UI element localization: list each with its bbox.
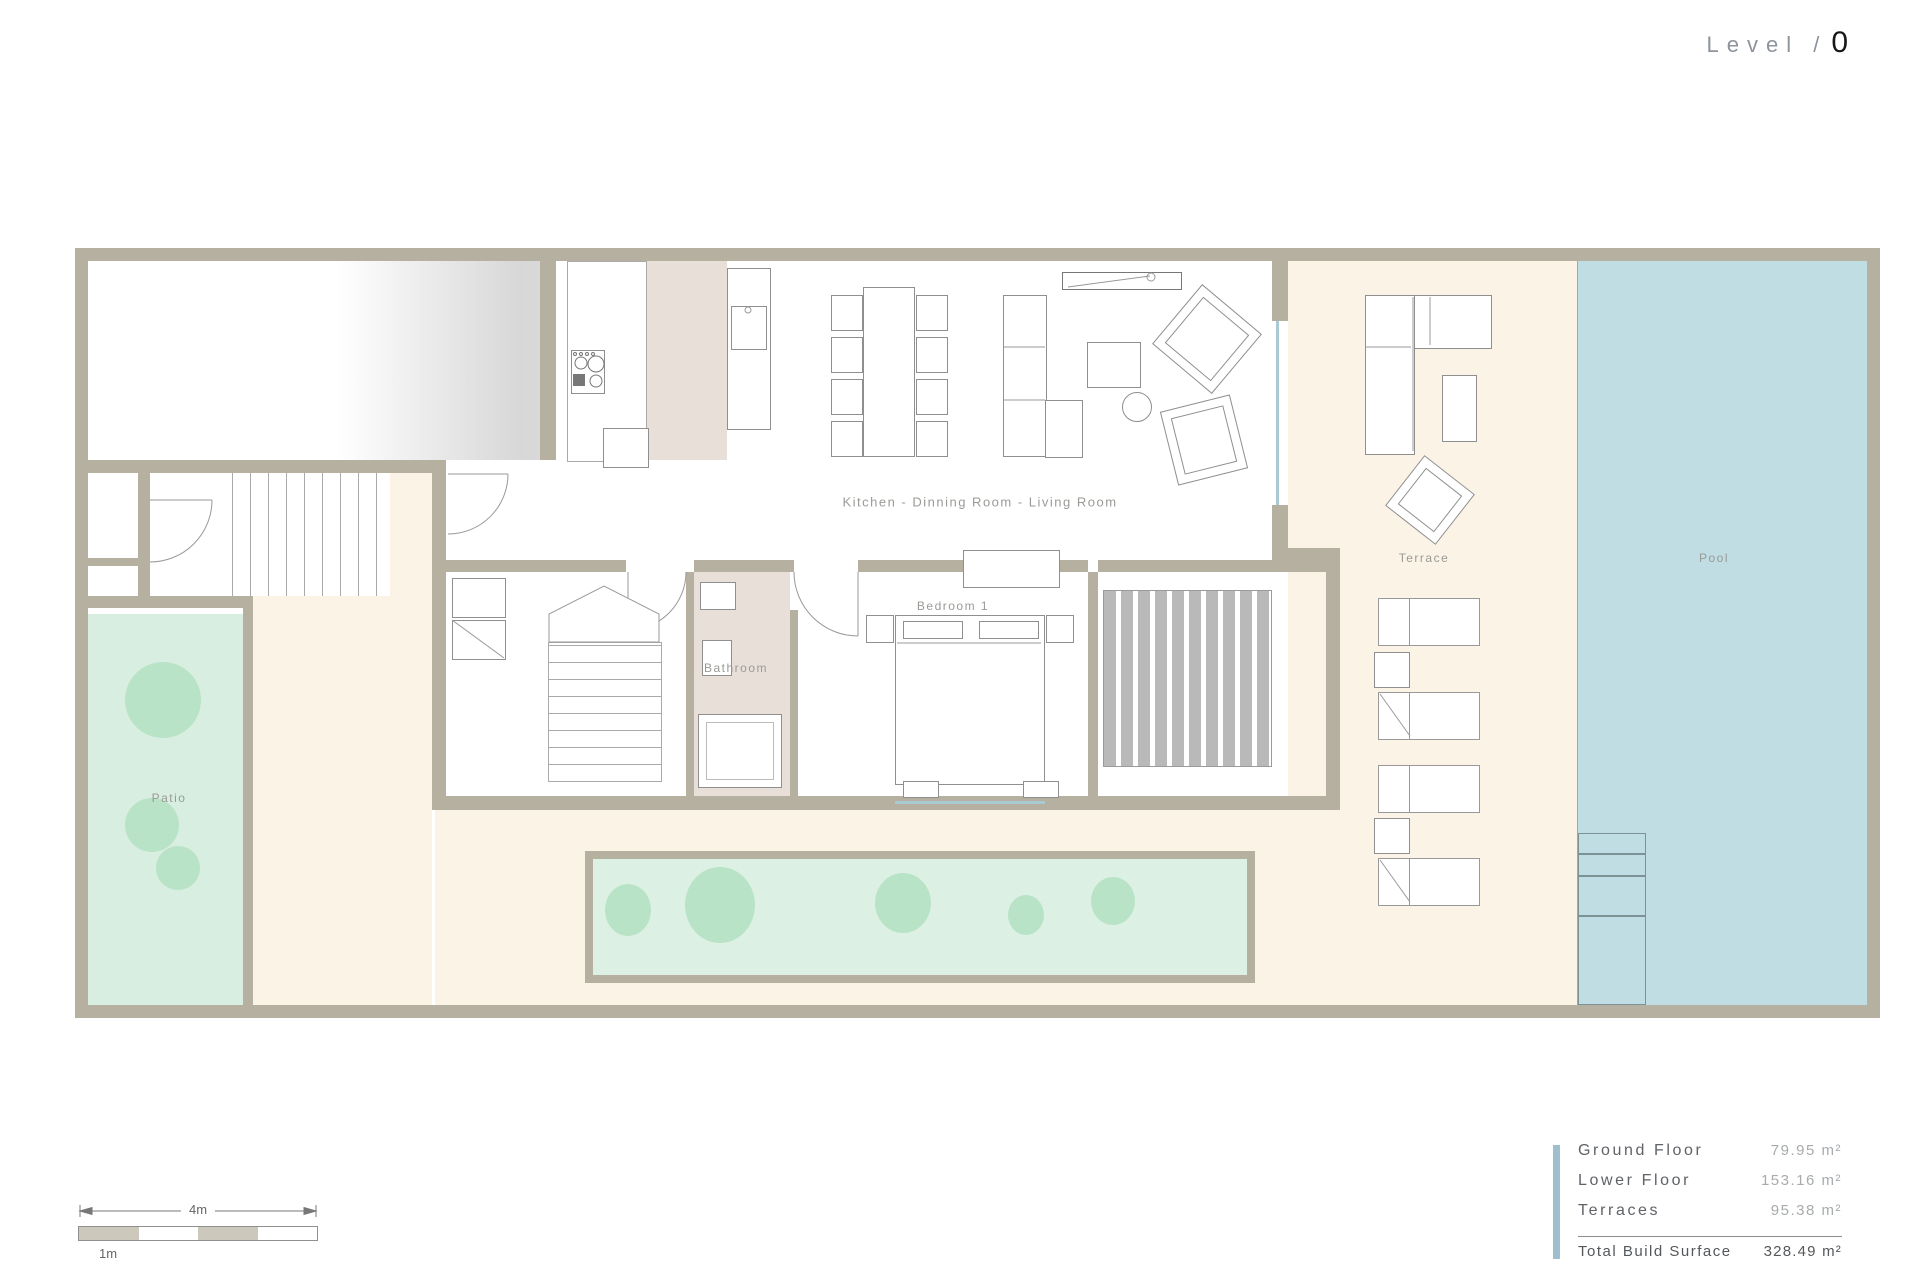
wall-left xyxy=(75,248,88,1005)
wall-top xyxy=(75,248,1880,261)
planter-bush xyxy=(685,867,755,943)
door-arc xyxy=(628,572,686,630)
legend-value: 79.95 m² xyxy=(1771,1142,1842,1159)
bathroom-sink xyxy=(700,582,736,610)
scale-total-label: 4m xyxy=(181,1202,215,1217)
wall-entry-room-split xyxy=(88,558,138,566)
scale-bar: 4m 1m xyxy=(78,1202,318,1266)
wall-patio-right xyxy=(243,606,253,1005)
legend-value: 153.16 m² xyxy=(1761,1172,1842,1189)
armchair-cushion xyxy=(1171,405,1237,474)
pool-step xyxy=(1578,875,1646,917)
wall-garage-bottom xyxy=(75,460,446,473)
room-label-bathroom: Bathroom xyxy=(704,661,768,675)
sun-lounger xyxy=(1378,858,1480,906)
dining-chair xyxy=(916,295,948,331)
dining-chair xyxy=(916,337,948,373)
armchair xyxy=(1160,394,1248,485)
door-arc xyxy=(150,500,212,562)
garage-floor xyxy=(88,261,540,460)
garden-planter xyxy=(585,851,1255,983)
legend-divider xyxy=(1578,1236,1842,1237)
dining-chair xyxy=(831,337,863,373)
dining-chair xyxy=(831,295,863,331)
lounger-headrest-line xyxy=(1409,859,1410,905)
planter-bush xyxy=(605,884,651,936)
outdoor-sofa-vertical xyxy=(1365,295,1415,455)
room-label-terrace: Terrace xyxy=(1399,551,1450,565)
lounger-headrest-line xyxy=(1409,599,1410,645)
sun-lounger xyxy=(1378,598,1480,646)
wall-mid xyxy=(1098,560,1340,572)
dining-chair xyxy=(916,379,948,415)
wall-right xyxy=(1867,248,1880,1018)
bed-bench xyxy=(903,781,939,798)
dining-chair xyxy=(916,421,948,457)
lounger-table xyxy=(1374,818,1410,854)
legend-total-row: Total Build Surface 328.49 m² xyxy=(1578,1243,1842,1273)
wall-house-east-upper xyxy=(1272,261,1288,321)
stair-closet xyxy=(452,578,506,618)
pillow xyxy=(979,621,1039,639)
lounge-chair-cushion xyxy=(1398,468,1463,533)
wall-mid xyxy=(694,560,794,572)
stairs-arrow xyxy=(549,586,659,642)
shower xyxy=(698,714,782,788)
lounger-headrest-line xyxy=(1409,766,1410,812)
door-arc xyxy=(448,474,508,534)
stair-closet xyxy=(452,620,506,660)
wall-bath-bedroom xyxy=(790,610,798,796)
scale-unit-label: 1m xyxy=(99,1246,117,1261)
wall-patio-top xyxy=(75,596,253,608)
pillow xyxy=(903,621,963,639)
deck-pergola xyxy=(1103,590,1272,767)
wall-mid xyxy=(446,560,626,572)
legend-accent-bar xyxy=(1553,1145,1560,1259)
dining-chair xyxy=(831,421,863,457)
outdoor-side-table xyxy=(1442,375,1477,442)
window-bedroom-south xyxy=(895,801,1045,804)
wall-stair-bath xyxy=(686,572,694,796)
stove xyxy=(571,350,605,394)
window-living-east xyxy=(1276,321,1279,505)
scale-segments xyxy=(78,1226,318,1241)
garden-planter-bed xyxy=(593,859,1247,975)
dining-table xyxy=(863,287,915,457)
legend-total-value: 328.49 m² xyxy=(1764,1243,1842,1260)
armchair xyxy=(1152,284,1262,394)
sofa-chaise xyxy=(1045,400,1083,458)
legend-label: Terraces xyxy=(1578,1202,1660,1220)
legend-total-label: Total Build Surface xyxy=(1578,1243,1732,1260)
legend-row: Lower Floor 153.16 m² xyxy=(1578,1172,1842,1202)
pool-step xyxy=(1578,915,1646,1005)
sun-lounger xyxy=(1378,765,1480,813)
dresser xyxy=(963,550,1060,588)
scale-segment xyxy=(79,1227,139,1240)
kitchen-cabinet xyxy=(603,428,649,468)
wall-house-south xyxy=(432,796,1340,810)
sofa xyxy=(1003,295,1047,457)
legend-label: Lower Floor xyxy=(1578,1172,1691,1190)
wall-entry-divider xyxy=(138,472,150,596)
room-label-bedroom: Bedroom 1 xyxy=(917,599,989,613)
legend-row: Ground Floor 79.95 m² xyxy=(1578,1142,1842,1172)
pool-step xyxy=(1578,853,1646,877)
main-stairs xyxy=(548,642,662,782)
legend-label: Ground Floor xyxy=(1578,1142,1703,1160)
dining-chair xyxy=(831,379,863,415)
door-arc xyxy=(794,572,858,636)
room-label-kitchen-living: Kitchen - Dinning Room - Living Room xyxy=(842,495,1117,510)
planter-bush xyxy=(1091,877,1135,925)
planter-bush xyxy=(875,873,931,933)
lounger-table xyxy=(1374,652,1410,688)
wall-bottom xyxy=(75,1005,1880,1018)
kitchen-sink xyxy=(731,306,767,350)
room-label-patio: Patio xyxy=(152,791,187,805)
scale-segment xyxy=(198,1227,258,1240)
pool-step xyxy=(1578,833,1646,855)
wall-bedroom-deck xyxy=(1088,572,1098,796)
legend-row: Terraces 95.38 m² xyxy=(1578,1202,1842,1232)
kitchen-floor xyxy=(645,261,727,460)
armchair-cushion xyxy=(1165,297,1250,382)
wall-house-east-connector xyxy=(1272,548,1340,560)
legend-value: 95.38 m² xyxy=(1771,1202,1842,1219)
floor-plan-page: { "title": { "prefix": "Level /", "numbe… xyxy=(0,0,1920,1280)
side-table-round xyxy=(1122,392,1152,422)
planter-bush xyxy=(1008,895,1044,935)
nightstand xyxy=(1046,615,1074,643)
room-label-pool: Pool xyxy=(1699,551,1729,565)
pool xyxy=(1577,261,1868,1005)
scale-segment xyxy=(258,1227,318,1240)
bed xyxy=(895,615,1045,785)
lounger-headrest-line xyxy=(1409,693,1410,739)
wall-house-west xyxy=(432,460,446,810)
scale-segment xyxy=(139,1227,199,1240)
bed-bench xyxy=(1023,781,1059,798)
sun-lounger xyxy=(1378,692,1480,740)
entry-stairs xyxy=(215,472,390,596)
tv-console xyxy=(1062,272,1182,290)
nightstand xyxy=(866,615,894,643)
floor-plan: Kitchen - Dinning Room - Living Room Bed… xyxy=(0,0,1920,1280)
patio-bush xyxy=(125,662,201,738)
coffee-table xyxy=(1087,342,1141,388)
patio-floor xyxy=(88,614,243,1005)
wall-garage-kitchen xyxy=(540,261,556,460)
wall-house-east xyxy=(1326,560,1340,810)
shower-tray xyxy=(706,722,774,780)
area-legend: Ground Floor 79.95 m² Lower Floor 153.16… xyxy=(1578,1142,1842,1273)
patio-bush xyxy=(156,846,200,890)
patio-bush xyxy=(125,798,179,852)
